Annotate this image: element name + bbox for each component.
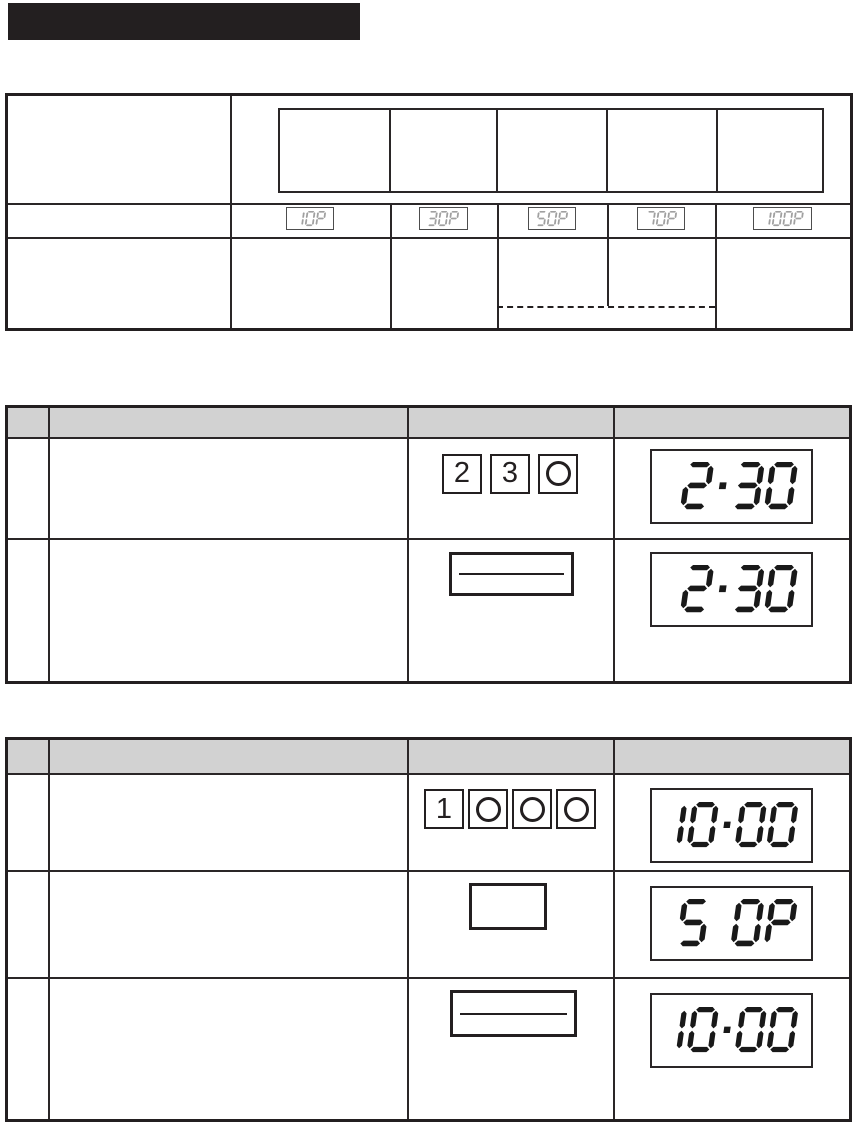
section-title-bar [8, 3, 360, 40]
zero-circle-icon [520, 797, 545, 822]
power-display-cell [497, 207, 607, 230]
lcd-display-50p [528, 207, 576, 230]
steps-table-1: 23 [5, 405, 852, 684]
display-cell [613, 788, 849, 863]
display-cell [613, 993, 849, 1068]
steps-table-2: 1 [5, 737, 852, 1122]
grid-line [8, 977, 849, 979]
grid-line [716, 110, 718, 191]
display-cell [613, 886, 849, 961]
grid-line [8, 870, 849, 872]
display-cell [613, 552, 849, 627]
grid-line [496, 110, 498, 191]
power-display-cell [230, 207, 390, 230]
key-1[interactable]: 1 [424, 789, 464, 829]
zero-circle-icon [476, 797, 501, 822]
zero-circle-icon [564, 797, 589, 822]
power-display-cell [390, 207, 497, 230]
grid-line [8, 437, 849, 439]
display-cell [613, 449, 849, 524]
start-button-bar [459, 573, 564, 575]
key-3[interactable]: 3 [490, 454, 530, 494]
lcd-display-100p [753, 207, 812, 230]
lcd-display-10p [286, 207, 334, 230]
grid-line [8, 538, 849, 540]
grid-line [8, 237, 850, 239]
table-header-row [8, 740, 849, 773]
lcd-display-10-00 [650, 788, 813, 863]
key-0[interactable] [538, 454, 578, 494]
grid-line [407, 408, 409, 681]
key-0[interactable] [556, 789, 596, 829]
micro-power-button[interactable] [469, 883, 547, 930]
grid-line [389, 110, 391, 191]
grid-line [8, 773, 849, 775]
table-header-row [8, 408, 849, 437]
start-button-bar [460, 1013, 566, 1015]
lcd-display-10-00 [650, 993, 813, 1068]
key-0[interactable] [468, 789, 508, 829]
manual-page: 23 1 [0, 0, 857, 1126]
key-0[interactable] [512, 789, 552, 829]
grid-line [48, 408, 50, 681]
dashed-merge-line [497, 306, 715, 308]
power-button-slot-box [278, 108, 824, 193]
lcd-display-2-30 [650, 552, 813, 627]
grid-line [48, 740, 50, 1119]
keypad-row: 1 [407, 789, 613, 829]
power-display-cell [607, 207, 715, 230]
lcd-display-2-30 [650, 449, 813, 524]
key-2[interactable]: 2 [442, 454, 482, 494]
lcd-display-50p [650, 886, 813, 961]
lcd-display-70p [637, 207, 685, 230]
keypad-row: 23 [407, 453, 613, 494]
start-button[interactable] [450, 990, 577, 1037]
start-button[interactable] [449, 552, 574, 596]
power-display-cell [715, 207, 850, 230]
grid-line [8, 203, 850, 205]
zero-circle-icon [546, 461, 571, 486]
lcd-display-30p [419, 207, 467, 230]
grid-line [606, 110, 608, 191]
power-level-table [5, 93, 853, 331]
